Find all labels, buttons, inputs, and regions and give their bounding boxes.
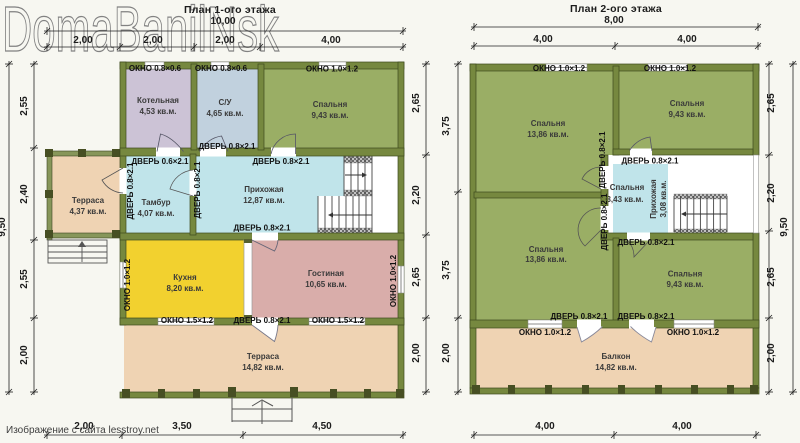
svg-text:ДВЕРЬ 0.8×2.1: ДВЕРЬ 0.8×2.1 — [600, 193, 609, 251]
svg-text:ДВЕРЬ 0.8×2.1: ДВЕРЬ 0.8×2.1 — [621, 157, 679, 166]
svg-text:Спальня: Спальня — [668, 270, 703, 279]
svg-text:Балкон: Балкон — [602, 352, 631, 361]
svg-text:3,43 кв.м.: 3,43 кв.м. — [606, 195, 643, 204]
svg-text:Спальня: Спальня — [610, 183, 645, 192]
svg-text:3,75: 3,75 — [441, 116, 452, 136]
svg-text:8,20 кв.м.: 8,20 кв.м. — [166, 284, 203, 293]
svg-text:Гостиная: Гостиная — [308, 269, 344, 278]
svg-text:Кухня: Кухня — [173, 273, 197, 282]
svg-text:3,08 кв.м.: 3,08 кв.м. — [659, 180, 668, 217]
svg-text:План 1-ого этажа: План 1-ого этажа — [184, 4, 276, 16]
svg-text:2,55: 2,55 — [19, 269, 30, 289]
svg-text:Изображение с сайта lesstroy.n: Изображение с сайта lesstroy.net — [6, 424, 159, 436]
svg-text:ДВЕРЬ 0.6×2.1: ДВЕРЬ 0.6×2.1 — [131, 157, 189, 166]
svg-text:2,00: 2,00 — [441, 343, 452, 363]
svg-text:ОКНО 1.0×1.2: ОКНО 1.0×1.2 — [644, 64, 697, 73]
svg-text:13,86 кв.м.: 13,86 кв.м. — [525, 255, 567, 264]
svg-text:План 2-ого этажа: План 2-ого этажа — [570, 3, 662, 15]
svg-text:4,65 кв.м.: 4,65 кв.м. — [206, 109, 243, 118]
svg-text:9,50: 9,50 — [779, 217, 790, 237]
svg-text:Терраса: Терраса — [247, 352, 280, 361]
svg-text:ОКНО 1.0×1.2: ОКНО 1.0×1.2 — [667, 328, 720, 337]
svg-text:9,43 кв.м.: 9,43 кв.м. — [311, 111, 348, 120]
svg-text:Тамбур: Тамбур — [141, 198, 170, 207]
svg-text:2,55: 2,55 — [19, 96, 30, 116]
svg-text:4,37 кв.м.: 4,37 кв.м. — [69, 207, 106, 216]
svg-text:ДВЕРЬ 0.8×2.1: ДВЕРЬ 0.8×2.1 — [198, 142, 256, 151]
svg-text:ДВЕРЬ 0.8×2.1: ДВЕРЬ 0.8×2.1 — [233, 316, 291, 325]
svg-text:4,00: 4,00 — [535, 421, 555, 432]
svg-text:2,00: 2,00 — [19, 345, 30, 365]
svg-text:4,50: 4,50 — [312, 421, 332, 432]
svg-text:ОКНО 1.0×1.2: ОКНО 1.0×1.2 — [306, 65, 359, 74]
svg-text:ОКНО 0.8×0.6: ОКНО 0.8×0.6 — [195, 64, 248, 73]
svg-text:ОКНО 1.0×1.2: ОКНО 1.0×1.2 — [519, 328, 572, 337]
svg-text:13,86 кв.м.: 13,86 кв.м. — [527, 130, 569, 139]
svg-text:4,00: 4,00 — [321, 35, 341, 46]
svg-text:Прихожая: Прихожая — [649, 179, 658, 219]
svg-text:2,65: 2,65 — [411, 93, 422, 113]
svg-text:4,00: 4,00 — [533, 34, 553, 45]
svg-text:2,65: 2,65 — [766, 267, 777, 287]
svg-text:2,20: 2,20 — [766, 183, 777, 203]
svg-text:14,82 кв.м.: 14,82 кв.м. — [595, 363, 637, 372]
svg-text:9,43 кв.м.: 9,43 кв.м. — [668, 110, 705, 119]
svg-text:Прихожая: Прихожая — [244, 185, 284, 194]
svg-text:Котельная: Котельная — [137, 96, 179, 105]
svg-text:8,00: 8,00 — [604, 15, 624, 26]
svg-text:ДВЕРЬ 0.8×2.1: ДВЕРЬ 0.8×2.1 — [617, 312, 675, 321]
svg-text:ДВЕРЬ 0.8×2.1: ДВЕРЬ 0.8×2.1 — [252, 157, 310, 166]
svg-text:2,00: 2,00 — [215, 35, 235, 46]
svg-text:3,50: 3,50 — [172, 421, 192, 432]
svg-text:2,40: 2,40 — [19, 184, 30, 204]
svg-text:ОКНО 1.0×1.2: ОКНО 1.0×1.2 — [389, 254, 398, 307]
svg-text:12,87 кв.м.: 12,87 кв.м. — [243, 196, 285, 205]
svg-text:ОКНО 1.5×1.2: ОКНО 1.5×1.2 — [312, 316, 365, 325]
svg-text:2,20: 2,20 — [411, 185, 422, 205]
svg-text:2,65: 2,65 — [411, 267, 422, 287]
svg-text:4,53 кв.м.: 4,53 кв.м. — [139, 107, 176, 116]
svg-text:С/У: С/У — [219, 98, 233, 107]
svg-text:14,82 кв.м.: 14,82 кв.м. — [242, 363, 284, 372]
svg-text:2,65: 2,65 — [766, 93, 777, 113]
svg-text:ОКНО 1.0×1.2: ОКНО 1.0×1.2 — [123, 258, 132, 311]
svg-text:4,00: 4,00 — [672, 421, 692, 432]
svg-text:ДВЕРЬ 0.8×2.1: ДВЕРЬ 0.8×2.1 — [126, 162, 135, 220]
svg-text:10,65 кв.м.: 10,65 кв.м. — [305, 280, 347, 289]
svg-text:4,07 кв.м.: 4,07 кв.м. — [137, 209, 174, 218]
svg-text:2,00: 2,00 — [73, 35, 93, 46]
svg-text:ОКНО 1.5×1.2: ОКНО 1.5×1.2 — [161, 316, 214, 325]
svg-text:Спальня: Спальня — [531, 119, 566, 128]
svg-text:ОКНО 0.8×0.6: ОКНО 0.8×0.6 — [129, 64, 182, 73]
svg-text:ДВЕРЬ 0.8×2.1: ДВЕРЬ 0.8×2.1 — [617, 238, 675, 247]
svg-text:Спальня: Спальня — [529, 245, 564, 254]
svg-text:2,00: 2,00 — [766, 343, 777, 363]
svg-text:10,00: 10,00 — [210, 16, 235, 27]
svg-text:ДВЕРЬ 0.8×2.1: ДВЕРЬ 0.8×2.1 — [233, 224, 291, 233]
svg-text:3,75: 3,75 — [441, 260, 452, 280]
svg-text:Спальня: Спальня — [670, 99, 705, 108]
svg-text:9,43 кв.м.: 9,43 кв.м. — [666, 280, 703, 289]
svg-text:2,00: 2,00 — [411, 343, 422, 363]
svg-text:ДВЕРЬ 0.8×2.1: ДВЕРЬ 0.8×2.1 — [550, 312, 608, 321]
svg-text:ДВЕРЬ 0.8×2.1: ДВЕРЬ 0.8×2.1 — [193, 161, 202, 219]
svg-text:ДВЕРЬ 0.8×2.1: ДВЕРЬ 0.8×2.1 — [598, 131, 607, 189]
svg-text:2,00: 2,00 — [143, 35, 163, 46]
svg-text:Спальня: Спальня — [313, 100, 348, 109]
svg-text:4,00: 4,00 — [677, 34, 697, 45]
svg-text:ОКНО 1.0×1.2: ОКНО 1.0×1.2 — [533, 64, 586, 73]
svg-text:9,50: 9,50 — [0, 217, 8, 237]
svg-text:Терраса: Терраса — [72, 196, 105, 205]
